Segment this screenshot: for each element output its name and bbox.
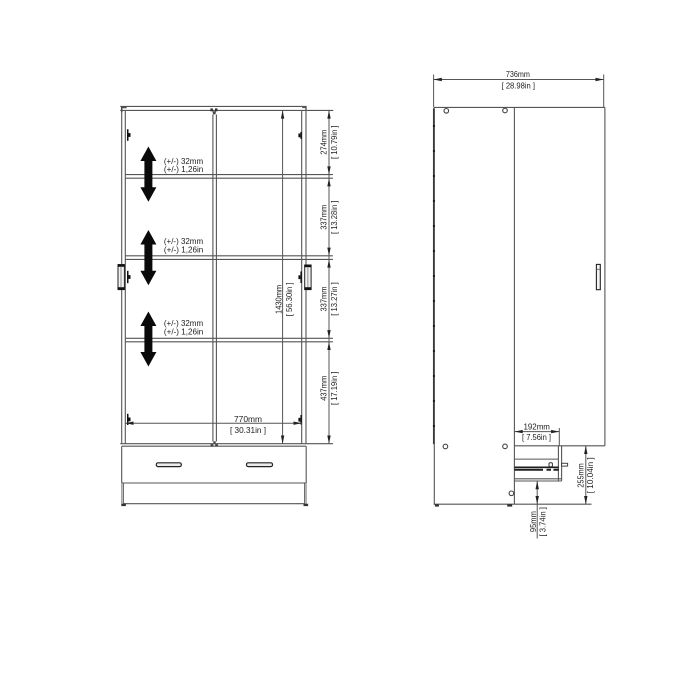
svg-text:[ 13.28in ]: [ 13.28in ] <box>330 201 339 235</box>
svg-text:[ 30.31in ]: [ 30.31in ] <box>230 426 266 435</box>
svg-text:255mm: 255mm <box>577 463 586 488</box>
svg-text:[ 28.98in ]: [ 28.98in ] <box>502 82 535 91</box>
svg-text:[ 7.56in ]: [ 7.56in ] <box>522 433 551 442</box>
svg-text:(+/-) 1,26in: (+/-) 1,26in <box>164 327 204 337</box>
svg-text:(+/-) 1,26in: (+/-) 1,26in <box>164 244 204 254</box>
svg-text:[ 13.27in ]: [ 13.27in ] <box>330 282 339 316</box>
svg-text:192mm: 192mm <box>523 422 550 431</box>
svg-text:[ 10.79in ]: [ 10.79in ] <box>330 125 339 159</box>
svg-text:[ 56.30in ]: [ 56.30in ] <box>285 283 294 317</box>
svg-text:[ 3.74in ]: [ 3.74in ] <box>539 507 548 536</box>
svg-text:736mm: 736mm <box>506 70 530 79</box>
svg-text:437mm: 437mm <box>320 375 329 400</box>
svg-text:(+/-) 1,26in: (+/-) 1,26in <box>164 164 204 174</box>
svg-text:1430mm: 1430mm <box>275 285 284 314</box>
svg-text:[ 17.19in ]: [ 17.19in ] <box>330 372 339 406</box>
svg-text:337mm: 337mm <box>320 204 329 229</box>
svg-text:[ 10.04in ]: [ 10.04in ] <box>586 457 595 493</box>
svg-text:274mm: 274mm <box>320 129 329 154</box>
svg-text:337mm: 337mm <box>320 286 329 311</box>
svg-text:770mm: 770mm <box>234 415 262 424</box>
svg-text:95mm: 95mm <box>529 511 538 532</box>
